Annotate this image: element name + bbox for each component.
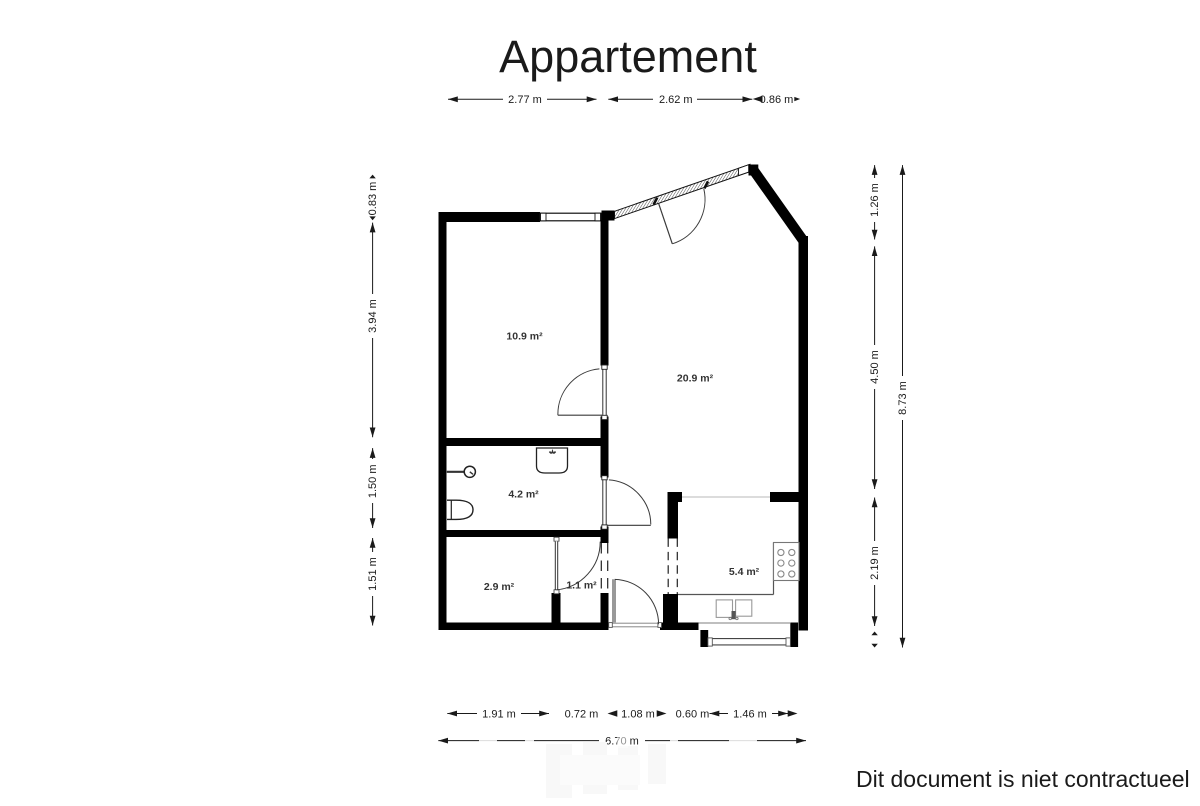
svg-text:0.86 m: 0.86 m [760, 94, 794, 106]
svg-text:8.73 m: 8.73 m [897, 381, 909, 415]
svg-text:1.26 m: 1.26 m [869, 183, 881, 217]
svg-text:0.72 m: 0.72 m [565, 708, 599, 720]
svg-text:Appartement: Appartement [499, 31, 757, 82]
svg-text:0.60 m: 0.60 m [676, 708, 710, 720]
svg-text:1.08 m: 1.08 m [621, 708, 655, 720]
svg-text:2.62 m: 2.62 m [659, 94, 693, 106]
svg-text:3.94 m: 3.94 m [367, 299, 379, 333]
svg-text:2.19 m: 2.19 m [869, 546, 881, 580]
svg-text:1.51 m: 1.51 m [367, 557, 379, 591]
svg-text:5.4 m²: 5.4 m² [729, 566, 760, 578]
svg-text:2.9 m²: 2.9 m² [484, 581, 515, 593]
svg-text:4.50 m: 4.50 m [869, 350, 881, 384]
svg-text:4.2 m²: 4.2 m² [508, 489, 539, 501]
svg-text:1.46 m: 1.46 m [733, 708, 767, 720]
svg-text:10.9 m²: 10.9 m² [506, 331, 543, 343]
svg-text:0.83 m: 0.83 m [367, 182, 379, 216]
svg-text:1.1 m²: 1.1 m² [566, 580, 597, 592]
svg-text:1.91 m: 1.91 m [482, 708, 516, 720]
svg-text:Dit document is niet contractu: Dit document is niet contractueel [856, 766, 1190, 792]
svg-text:2.77 m: 2.77 m [508, 94, 542, 106]
svg-text:20.9 m²: 20.9 m² [677, 373, 714, 385]
svg-text:1.50 m: 1.50 m [367, 464, 379, 498]
